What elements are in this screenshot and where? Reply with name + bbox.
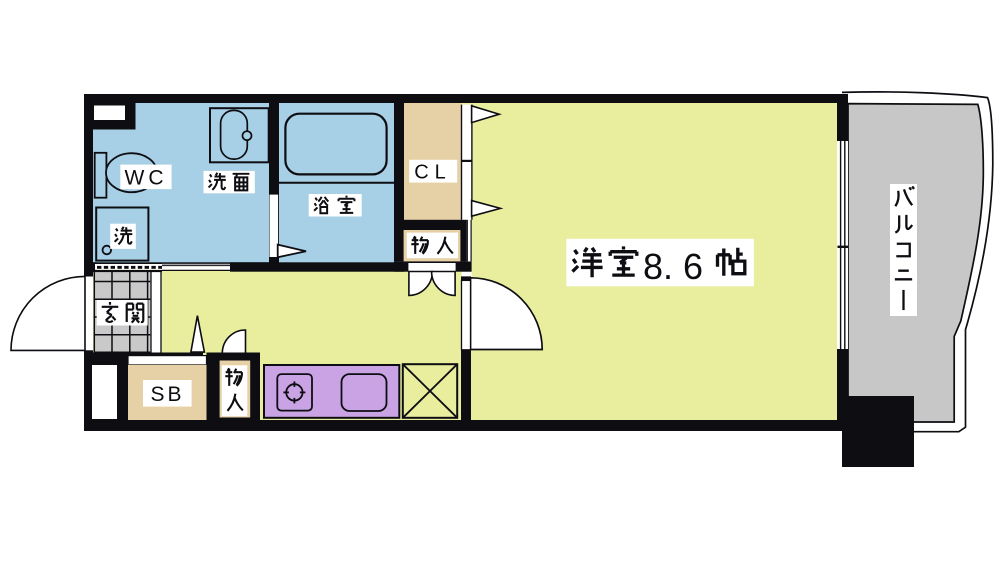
svg-text:WC: WC [125,167,168,190]
svg-text:CL: CL [414,161,452,183]
svg-text:8. 6: 8. 6 [643,246,703,287]
svg-text:SB: SB [150,383,184,406]
